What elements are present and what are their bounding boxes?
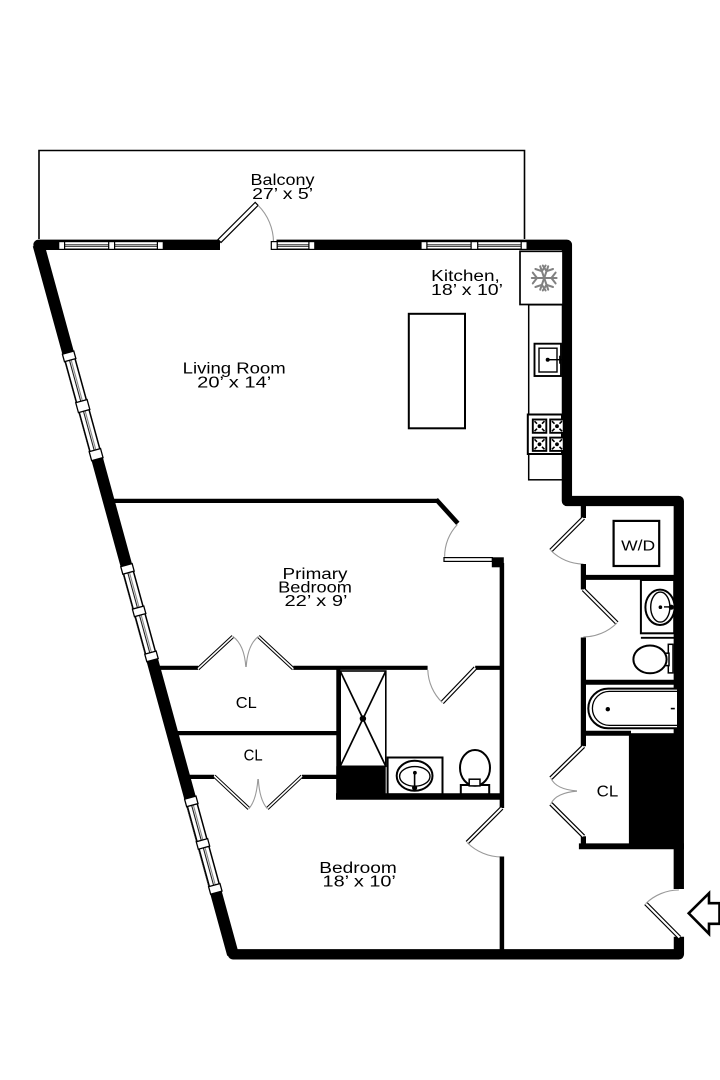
svg-text:W/D: W/D	[621, 538, 655, 555]
svg-text:CL: CL	[244, 748, 263, 765]
svg-text:CL: CL	[236, 695, 257, 712]
svg-text:20’ x 14’: 20’ x 14’	[197, 374, 271, 391]
svg-text:18’ x 10’: 18’ x 10’	[431, 282, 503, 299]
svg-text:CL: CL	[597, 784, 619, 801]
svg-text:22’ x 9’: 22’ x 9’	[285, 593, 348, 610]
svg-text:27’ x 5’: 27’ x 5’	[252, 186, 313, 203]
svg-text:18’ x 10’: 18’ x 10’	[323, 874, 396, 891]
